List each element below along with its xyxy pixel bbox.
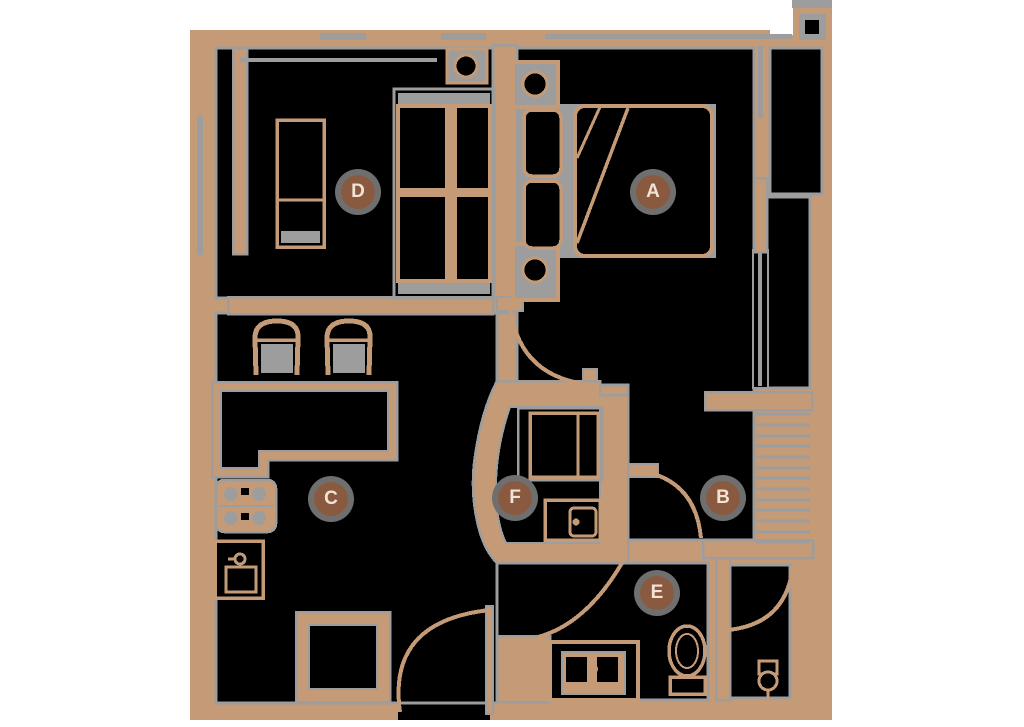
room-label-f-letter: F — [509, 487, 521, 509]
floor-plan-page: A B C D E F — [0, 0, 1024, 727]
washer-window-1 — [566, 657, 587, 682]
pod-basin-tap — [573, 519, 580, 526]
room-label-d-letter: D — [351, 181, 365, 203]
room-label-c: C — [314, 482, 348, 516]
pillow-2 — [524, 181, 561, 248]
entry-storage-inner — [309, 625, 377, 689]
hob-control — [241, 488, 249, 495]
room-label-e-letter: E — [651, 582, 664, 604]
cabinet-base — [281, 231, 320, 243]
room-label-b-letter: B — [716, 487, 730, 509]
room-label-c-letter: C — [324, 488, 338, 510]
wall-d-bottom — [228, 297, 493, 314]
chair-seat — [333, 344, 365, 373]
shaft-floor — [766, 197, 810, 388]
room-label-a: A — [636, 175, 670, 209]
nightstand-top-lamp — [523, 72, 547, 96]
burner — [224, 511, 238, 525]
pedestal-basin — [759, 672, 777, 690]
shower-tray — [530, 413, 598, 477]
corner-box — [799, 14, 826, 40]
pillow-1 — [524, 110, 561, 176]
room-label-b: B — [706, 481, 740, 515]
room-label-a-letter: A — [646, 181, 660, 203]
washer-foot — [566, 686, 587, 693]
floor-plan — [0, 0, 1024, 727]
room-label-d: D — [341, 175, 375, 209]
cabinet — [277, 120, 324, 247]
window-top-3 — [545, 34, 792, 39]
corner-box-core — [805, 20, 819, 34]
hob-control — [241, 513, 249, 520]
sink-tap — [235, 554, 245, 564]
burner — [252, 511, 266, 525]
nightstand-bottom-lamp — [523, 258, 547, 282]
room-d-bulkhead-line — [240, 58, 437, 62]
entrance-door-leaf — [486, 606, 493, 714]
wall-entry-corner — [497, 636, 550, 702]
room-label-f: F — [498, 481, 532, 515]
window-top-1 — [320, 33, 366, 40]
wardrobe-divider-h — [398, 188, 490, 197]
washer-window-2 — [597, 657, 618, 682]
chair-seat — [261, 344, 293, 373]
ceiling-fixture — [455, 55, 477, 77]
window-top-2 — [441, 33, 486, 40]
wall-stairs-top — [705, 392, 812, 410]
washer-foot — [594, 686, 615, 693]
side-window-line — [758, 252, 762, 386]
bathroom-pod — [473, 381, 628, 563]
toilet-cistern — [670, 677, 705, 694]
top-right-closet-floor — [770, 48, 822, 194]
window-left — [197, 115, 203, 255]
wall-a-pier — [754, 178, 767, 252]
burner — [224, 487, 238, 501]
wall-d-window-pier — [233, 48, 247, 254]
sink-basin — [226, 567, 256, 592]
window-right-wing — [758, 46, 763, 118]
washer-knob — [588, 664, 598, 674]
room-label-e: E — [640, 576, 674, 610]
burner — [252, 487, 266, 501]
